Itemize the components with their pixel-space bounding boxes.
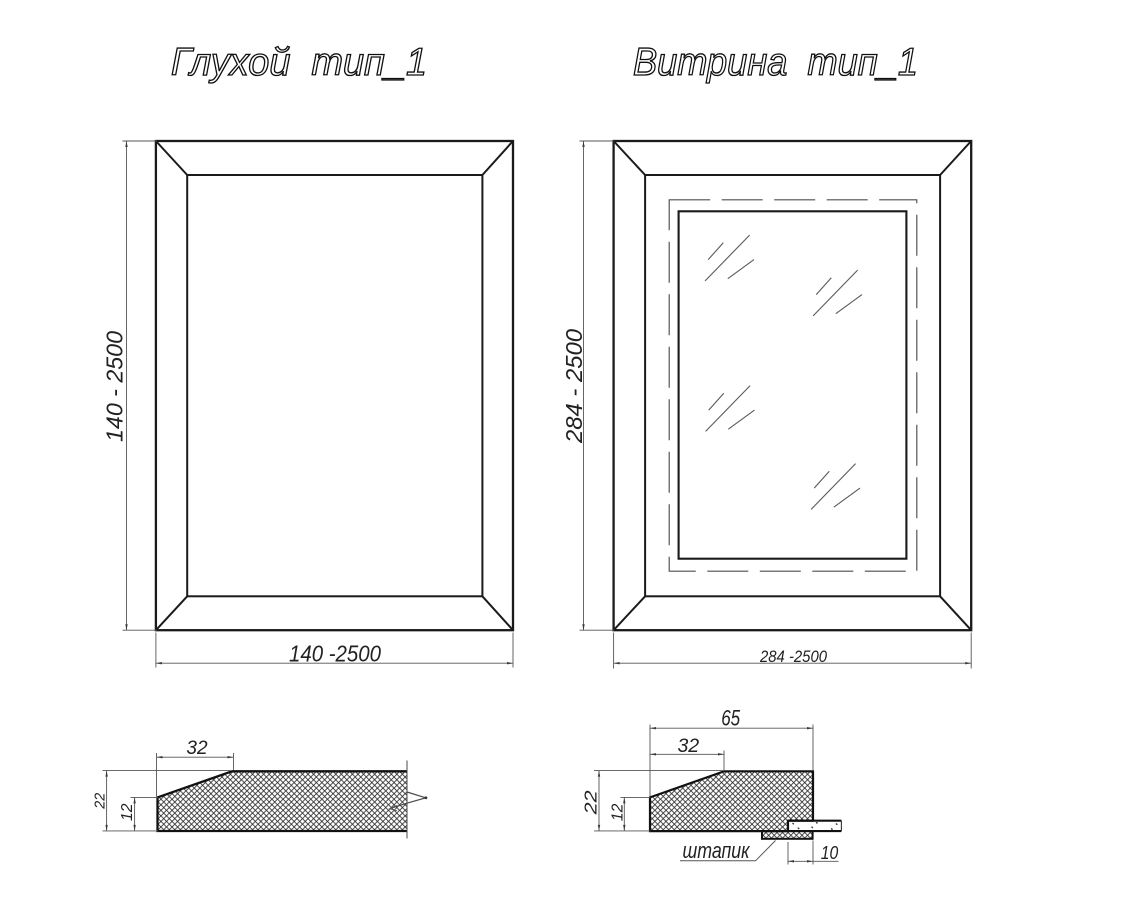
svg-text:32: 32 [677, 735, 699, 757]
svg-text:140 -2500: 140 -2500 [289, 640, 381, 666]
svg-text:22: 22 [92, 792, 109, 810]
svg-text:Витрина тип_1: Витрина тип_1 [633, 41, 918, 84]
svg-text:284 - 2500: 284 - 2500 [561, 329, 587, 444]
svg-text:22: 22 [581, 790, 601, 816]
svg-text:65: 65 [721, 706, 741, 731]
svg-text:штапик: штапик [683, 838, 751, 863]
svg-text:12: 12 [119, 803, 136, 821]
svg-text:10: 10 [821, 842, 839, 863]
svg-text:32: 32 [186, 738, 208, 759]
svg-text:140 - 2500: 140 - 2500 [102, 331, 128, 442]
svg-text:Глухой тип_1: Глухой тип_1 [171, 41, 427, 84]
svg-text:284 -2500: 284 -2500 [759, 647, 827, 666]
svg-text:12: 12 [610, 804, 627, 822]
